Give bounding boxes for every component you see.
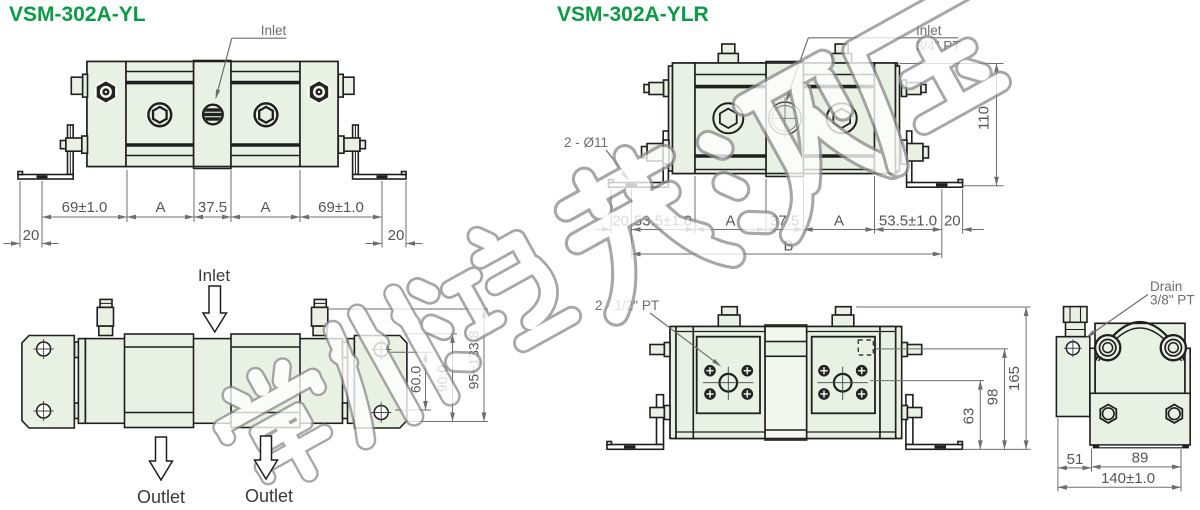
svg-text:63: 63 bbox=[961, 408, 978, 425]
svg-text:A: A bbox=[155, 199, 165, 216]
svg-text:Outlet: Outlet bbox=[137, 487, 185, 507]
svg-text:37.5: 37.5 bbox=[198, 199, 227, 216]
svg-text:140±1.0: 140±1.0 bbox=[1101, 470, 1155, 487]
svg-text:A: A bbox=[260, 199, 270, 216]
svg-text:20: 20 bbox=[23, 227, 40, 244]
svg-text:51: 51 bbox=[1067, 451, 1084, 468]
svg-text:Inlet: Inlet bbox=[198, 266, 230, 285]
svg-text:A: A bbox=[725, 213, 735, 230]
svg-text:20: 20 bbox=[944, 213, 961, 230]
svg-text:110: 110 bbox=[976, 106, 993, 130]
svg-text:20: 20 bbox=[388, 227, 405, 244]
svg-text:69±1.0: 69±1.0 bbox=[318, 199, 364, 216]
svg-text:VSM-302A-YL: VSM-302A-YL bbox=[9, 3, 146, 26]
svg-text:Outlet: Outlet bbox=[245, 486, 293, 506]
svg-text:165: 165 bbox=[1006, 366, 1023, 391]
svg-text:53.5±1.0: 53.5±1.0 bbox=[879, 213, 937, 230]
svg-text:2 - Ø11: 2 - Ø11 bbox=[564, 135, 608, 150]
svg-text:98: 98 bbox=[985, 389, 1002, 406]
svg-text:89: 89 bbox=[1132, 450, 1149, 467]
svg-text:VSM-302A-YLR: VSM-302A-YLR bbox=[557, 3, 709, 26]
svg-text:69±1.0: 69±1.0 bbox=[62, 199, 108, 216]
svg-text:3/8" PT: 3/8" PT bbox=[1150, 293, 1195, 308]
svg-text:A: A bbox=[834, 213, 844, 230]
svg-text:Inlet: Inlet bbox=[261, 23, 287, 38]
